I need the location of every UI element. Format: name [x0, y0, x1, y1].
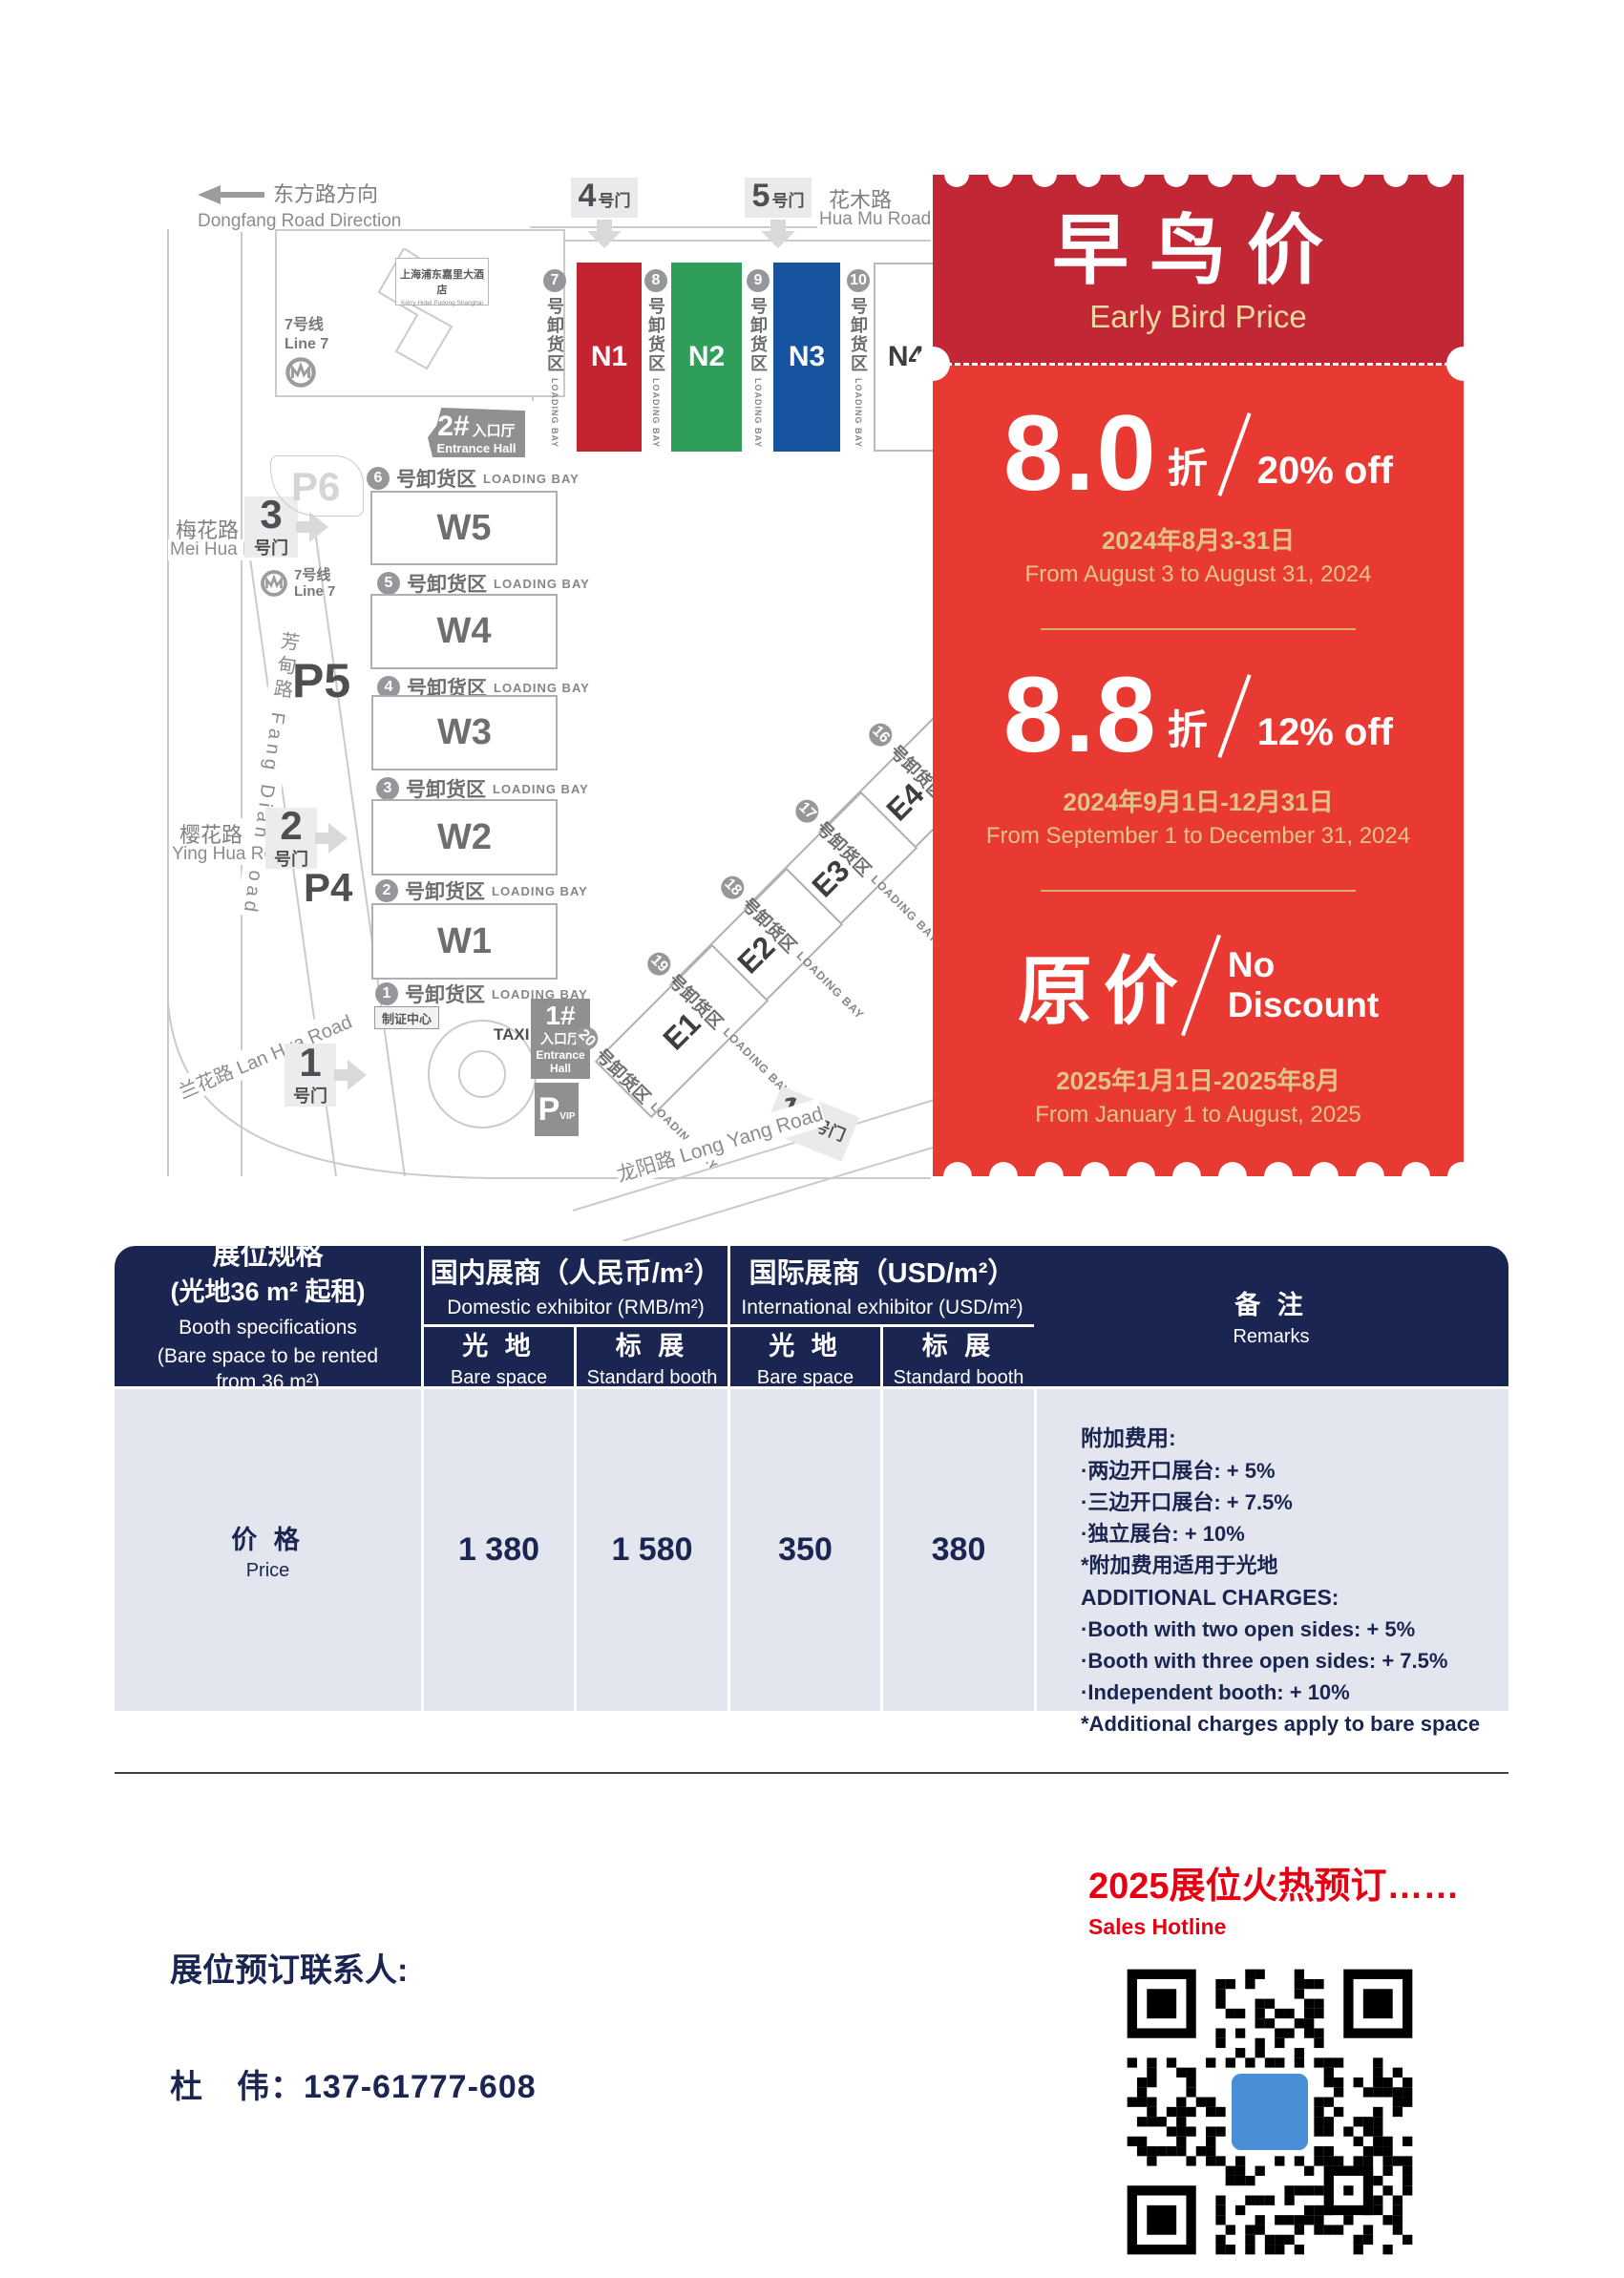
vip-parking: P VIP — [535, 1083, 579, 1136]
tier-1-unit: 折 — [1168, 436, 1208, 495]
remarks-en: Remarks — [1233, 1326, 1309, 1348]
tier-2-discount: 8.8 — [1003, 670, 1158, 760]
loading-bay-10-number: 10 — [847, 269, 870, 292]
loading-bay-label-zh: 号卸货区 — [405, 876, 485, 905]
sales-hotline-label: Sales Hotline — [1088, 1914, 1460, 1940]
price-en: Price — [246, 1560, 290, 1582]
tier-2-off: 12% off — [1257, 711, 1393, 754]
price-table: 展位规格 (光地36 m² 起租) Booth specifications (… — [115, 1246, 1508, 1711]
loading-bay-8: 8 号卸货区 LOADING BAY — [643, 269, 668, 448]
notes-zh-title: 附加费用: — [1081, 1422, 1176, 1455]
loading-bay-label-zh: 号卸货区 — [643, 297, 668, 373]
badge-center: 制证中心 — [374, 1006, 439, 1029]
hall-w4: W4 — [370, 594, 558, 669]
gate-3-number: 3 — [260, 495, 282, 535]
loading-bay-label-en: LOADING BAY — [493, 782, 589, 796]
metro-icon — [285, 356, 317, 389]
tier-2: 8.8 折 12% off 2024年9月1日-12月31日 From Sept… — [933, 670, 1464, 850]
col-booth-specs-header: 展位规格 (光地36 m² 起租) Booth specifications (… — [115, 1246, 421, 1386]
spec-zh2: (光地36 m² 起租) — [170, 1275, 365, 1309]
hall-w3: W3 — [371, 695, 558, 770]
hall-w5: W5 — [370, 491, 558, 565]
loading-bay-9: 9 号卸货区 LOADING BAY — [746, 269, 770, 448]
price-domestic-bare: 1 380 — [421, 1386, 574, 1711]
gate-5-number: 5 — [752, 178, 770, 215]
loading-bay-label-en: LOADING BAY — [492, 884, 588, 898]
domestic-en: Domestic exhibitor (RMB/m²) — [447, 1297, 705, 1319]
loading-bay-2-number: 2 — [375, 879, 398, 902]
loading-bay-9-number: 9 — [747, 269, 770, 292]
gate-1-arrow-icon — [334, 1060, 367, 1090]
loading-bay-label-en: LOADING BAY — [494, 681, 590, 695]
loading-bay-label-en: LOADING BAY — [483, 472, 580, 486]
entrance-hall-2: 2# 入口厅 Entrance Hall — [428, 408, 525, 457]
vip-parking-p: P — [538, 1091, 560, 1128]
gate-4: 4 号门 — [571, 178, 638, 218]
gate-5-suffix: 号门 — [771, 187, 804, 211]
hall-n3: N3 — [773, 263, 840, 452]
intl-zh: 国际展商（USD/m²） — [749, 1251, 1016, 1291]
ticket-perforation — [946, 363, 1450, 366]
entrance-1-label-en1: Entrance — [536, 1048, 584, 1062]
tier-2-date-zh: 2024年9月1日-12月31日 — [933, 783, 1464, 818]
loading-bay-6: 6 号卸货区 LOADING BAY — [367, 464, 580, 493]
tier-1-off: 20% off — [1257, 450, 1393, 493]
gate-4-arrow-icon — [587, 220, 622, 248]
hall-n1: N1 — [577, 263, 642, 452]
hotel-name-zh: 上海浦东嘉里大酒店 — [396, 266, 488, 297]
gate-5-arrow-icon — [761, 220, 795, 248]
scallop-bottom-edge — [935, 1148, 1464, 1176]
loading-bay-label-zh: 号卸货区 — [542, 297, 567, 373]
metro-line-en: Line 7 — [294, 583, 335, 600]
parking-p4: P4 — [304, 865, 352, 911]
international-group-header: 国际展商（USD/m²） International exhibitor (US… — [728, 1246, 1034, 1324]
original-date-zh: 2025年1月1日-2025年8月 — [933, 1062, 1464, 1097]
sales-hotline-block: 2025展位火热预订…… Sales Hotline — [1088, 1856, 1460, 1940]
metro-line7-station-2: 7号线 Line 7 — [260, 567, 335, 601]
domestic-bare-header: 光 地 Bare space — [421, 1324, 574, 1386]
hotel-name-en: Kerry Hotel Pudong Shanghai — [396, 300, 488, 306]
gate-3-suffix: 号门 — [254, 535, 288, 559]
original-price-block: 原价 No Discount 2025年1月1日-2025年8月 From Ja… — [933, 932, 1464, 1128]
qr-center-logo — [1228, 2070, 1312, 2154]
gate-2-arrow-icon — [315, 823, 348, 854]
tier-2-unit: 折 — [1168, 698, 1208, 756]
loading-bay-8-number: 8 — [644, 269, 667, 292]
early-bird-title-zh: 早鸟价 — [933, 175, 1464, 289]
price-intl-bare: 350 — [728, 1386, 880, 1711]
std-zh: 标 展 — [616, 1325, 689, 1362]
gate-1-number: 1 — [299, 1043, 321, 1083]
tier-1-date-zh: 2024年8月3-31日 — [933, 521, 1464, 557]
notes-zh-line: ·三边开口展台: + 7.5% — [1081, 1487, 1293, 1518]
loading-bay-7: 7 号卸货区 LOADING BAY — [542, 269, 567, 448]
entrance-1-number: 1# — [545, 1002, 575, 1029]
ticket-body: 8.0 折 20% off 2024年8月3-31日 From August 3… — [933, 365, 1464, 1176]
loading-bay-label-zh: 号卸货区 — [396, 464, 476, 493]
contact-phone: 杜 伟：137-61777-608 — [170, 2060, 537, 2107]
loading-bay-label-zh: 号卸货区 — [846, 297, 871, 373]
hotel-label-box: 上海浦东嘉里大酒店 Kerry Hotel Pudong Shanghai — [395, 258, 489, 306]
metro-line7-station-1: 7号线 Line 7 — [285, 317, 328, 389]
tier-1-discount: 8.0 — [1003, 409, 1158, 498]
entrance-2-label-en: Entrance Hall — [428, 441, 525, 455]
loading-bay-label-en: LOADING BAY — [854, 378, 863, 448]
contact-label: 展位预订联系人: — [170, 1944, 408, 1991]
gate-5: 5 号门 — [745, 178, 812, 218]
hall-n2: N2 — [671, 263, 742, 452]
gate-2-number: 2 — [280, 806, 302, 846]
notes-zh-line: ·独立展台: + 10% — [1081, 1518, 1245, 1550]
early-bird-title-en: Early Bird Price — [933, 299, 1464, 335]
notes-en-line: ·Independent booth: + 10% — [1081, 1677, 1350, 1708]
parking-p5: P5 — [292, 653, 350, 708]
metro-line-zh: 7号线 — [285, 317, 328, 334]
std-zh: 标 展 — [922, 1325, 996, 1362]
bare-zh: 光 地 — [769, 1325, 842, 1362]
gold-divider-1 — [1041, 628, 1356, 630]
entrance-2-label-zh: 入口厅 — [473, 420, 516, 440]
gate-1: 1 号门 — [285, 1044, 336, 1107]
loading-bay-label-en: LOADING BAY — [753, 378, 763, 448]
gate-1-suffix: 号门 — [293, 1083, 327, 1107]
loading-bay-10: 10 号卸货区 LOADING BAY — [846, 269, 871, 448]
gate-4-suffix: 号门 — [598, 187, 630, 211]
original-price-en1: No — [1228, 945, 1379, 986]
gate-4-number: 4 — [579, 178, 597, 215]
notes-en-line: ·Booth with three open sides: + 7.5% — [1081, 1645, 1447, 1677]
dongfang-road-label-zh: 东方路方向 — [271, 178, 380, 208]
notes-en-title: ADDITIONAL CHARGES: — [1081, 1581, 1339, 1614]
price-domestic-std: 1 580 — [574, 1386, 728, 1711]
loading-bay-1-number: 1 — [375, 982, 398, 1005]
loading-bay-2: 2 号卸货区 LOADING BAY — [375, 876, 588, 905]
domestic-std-header: 标 展 Standard booth — [574, 1324, 728, 1386]
intl-en: International exhibitor (USD/m²) — [741, 1297, 1023, 1319]
intl-bare-header: 光 地 Bare space — [728, 1324, 880, 1386]
early-bird-ticket: 早鸟价 Early Bird Price 8.0 折 20% off 2024年… — [933, 175, 1464, 1176]
metro-icon — [260, 569, 288, 598]
loading-bay-7-number: 7 — [543, 269, 566, 292]
notes-zh-line: ·两边开口展台: + 5% — [1081, 1455, 1276, 1487]
loading-bay-5-number: 5 — [377, 572, 400, 595]
price-zh: 价 格 — [231, 1519, 305, 1556]
entrance-2-number: 2# — [437, 411, 469, 443]
booking-headline: 2025展位火热预订…… — [1088, 1856, 1460, 1909]
notes-zh-line: *附加费用适用于光地 — [1081, 1550, 1278, 1581]
intl-std-header: 标 展 Standard booth — [880, 1324, 1034, 1386]
spec-zh1: 展位规格 — [212, 1237, 323, 1275]
gate-2: 2 号门 — [265, 808, 317, 869]
loading-bay-label-zh: 号卸货区 — [746, 297, 770, 373]
loading-bay-label-en: LOADING BAY — [494, 577, 590, 591]
loading-bay-label-zh: 号卸货区 — [405, 980, 485, 1008]
remarks-header: 备 注 Remarks — [1034, 1246, 1508, 1386]
tier-2-date-en: From September 1 to December 31, 2024 — [933, 823, 1464, 850]
hall-w2: W2 — [371, 799, 558, 875]
remarks-cell: 附加费用: ·两边开口展台: + 5% ·三边开口展台: + 7.5% ·独立展… — [1034, 1386, 1508, 1711]
original-price-zh: 原价 — [1018, 932, 1190, 1039]
metro-line-en: Line 7 — [285, 336, 328, 353]
slash-divider — [1217, 412, 1251, 496]
taxi-label: TAXI — [494, 1025, 529, 1044]
loading-bay-6-number: 6 — [367, 467, 390, 490]
notes-en-line: *Additional charges apply to bare space — [1081, 1708, 1480, 1740]
footer-divider — [115, 1772, 1508, 1774]
flyer-page: 东方路方向 Dongfang Road Direction 上海浦东嘉里大酒店 … — [0, 0, 1624, 2278]
ticket-notch-left — [916, 347, 950, 381]
price-intl-std: 380 — [880, 1386, 1034, 1711]
west-arrow-icon — [198, 185, 264, 204]
remarks-zh: 备 注 — [1234, 1284, 1308, 1321]
gold-divider-2 — [1041, 890, 1356, 892]
tier-1: 8.0 折 20% off 2024年8月3-31日 From August 3… — [933, 409, 1464, 588]
parking-p6: P6 — [291, 464, 340, 510]
notes-en-line: ·Booth with two open sides: + 5% — [1081, 1614, 1415, 1645]
domestic-group-header: 国内展商（人民币/m²） Domestic exhibitor (RMB/m²) — [421, 1246, 728, 1324]
price-row-label: 价 格 Price — [115, 1386, 421, 1711]
wechat-qr-code — [1106, 1948, 1434, 2276]
metro-line-zh: 7号线 — [294, 567, 335, 583]
bare-zh: 光 地 — [462, 1325, 536, 1362]
huamu-road-label-en: Hua Mu Road — [817, 209, 933, 230]
loading-bay-label-en: LOADING BAY — [550, 378, 559, 448]
tier-1-date-en: From August 3 to August 31, 2024 — [933, 561, 1464, 588]
hotel-block: 上海浦东嘉里大酒店 Kerry Hotel Pudong Shanghai 7号… — [275, 229, 565, 397]
loading-bay-label-en: LOADING BAY — [651, 378, 661, 448]
hall-w1: W1 — [371, 903, 558, 980]
original-date-en: From January 1 to August, 2025 — [933, 1102, 1464, 1128]
vip-parking-vip: VIP — [559, 1111, 575, 1122]
entrance-1-label-en2: Hall — [550, 1062, 571, 1075]
ticket-header: 早鸟价 Early Bird Price — [933, 175, 1464, 365]
loading-bay-3-number: 3 — [376, 777, 399, 800]
ticket-notch-right — [1446, 347, 1481, 381]
domestic-zh: 国内展商（人民币/m²） — [431, 1251, 722, 1291]
slash-divider — [1217, 674, 1251, 758]
spec-en1: Booth specifications — [179, 1315, 357, 1340]
original-price-en2: Discount — [1228, 985, 1379, 1026]
